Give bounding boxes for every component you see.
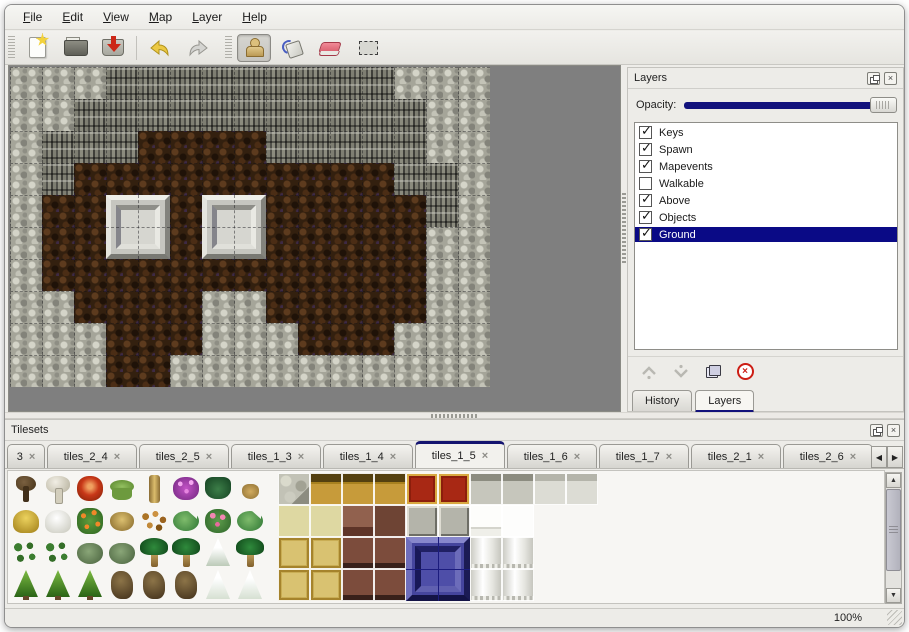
tileset-tile-lily[interactable]: [234, 505, 266, 537]
map-tile: [458, 291, 490, 323]
map-tile: [234, 67, 266, 99]
map-tile: [266, 67, 298, 99]
tileset-tile-blank[interactable]: [534, 505, 566, 537]
scroll-down-button[interactable]: ▼: [886, 588, 901, 603]
map-tile: [330, 163, 362, 195]
tileset-tile-carpet[interactable]: [278, 569, 310, 601]
map-tile: [138, 355, 170, 387]
chevron-down-icon: [671, 363, 691, 381]
map-tile: [330, 67, 362, 99]
map-tile: [330, 131, 362, 163]
layer-visibility-checkbox[interactable]: [639, 177, 652, 190]
map-tile: [426, 227, 458, 259]
tileset-tile-maroon[interactable]: [374, 569, 406, 601]
tileset-tile-stump[interactable]: [106, 473, 138, 505]
close-tab-icon[interactable]: ×: [206, 451, 212, 463]
tileset-tile-white-col[interactable]: [502, 537, 534, 569]
tileset-tile-blank[interactable]: [598, 505, 630, 537]
tileset-tile-white-col[interactable]: [470, 569, 502, 601]
tab-label: tiles_1_6: [524, 451, 568, 463]
map-tile: [42, 67, 74, 99]
tileset-tile-palm[interactable]: [170, 537, 202, 569]
tab-label: tiles_1_5: [432, 450, 476, 462]
tileset-tile-tree-bare[interactable]: [10, 473, 42, 505]
map-tile: [234, 99, 266, 131]
save-button[interactable]: [96, 34, 130, 62]
map-tile: [74, 195, 106, 227]
map-tile: [330, 195, 362, 227]
move-layer-up-button[interactable]: [638, 361, 660, 383]
map-tile: [42, 227, 74, 259]
tileset-tab-3[interactable]: 3×: [7, 444, 45, 468]
map-tile: [426, 195, 458, 227]
close-tab-icon[interactable]: ×: [574, 451, 580, 463]
tileset-tab-tiles_2_6[interactable]: tiles_2_6×: [783, 444, 873, 468]
menu-edit[interactable]: Edit: [52, 7, 93, 27]
map-tile: [106, 259, 138, 291]
map-platform-tile: [106, 195, 170, 259]
map-tile: [394, 227, 426, 259]
tileset-tile-blank[interactable]: [598, 537, 630, 569]
map-tile: [10, 259, 42, 291]
map-tile: [362, 99, 394, 131]
map-tile: [74, 99, 106, 131]
tileset-tile-blank[interactable]: [630, 569, 662, 601]
check-icon: ✓: [641, 192, 652, 205]
tileset-tile-red-ornate[interactable]: [438, 473, 470, 505]
scroll-tabs-left-button[interactable]: ◀: [871, 446, 887, 468]
tileset-tile-tree-white[interactable]: [42, 473, 74, 505]
tileset-tab-tiles_1_4[interactable]: tiles_1_4×: [323, 444, 413, 468]
tileset-tile-bush-dry[interactable]: [106, 505, 138, 537]
map-tile: [42, 131, 74, 163]
map-tile: [170, 163, 202, 195]
menu-layer[interactable]: Layer: [182, 7, 232, 27]
check-icon: ✓: [641, 226, 652, 239]
map-tile: [10, 291, 42, 323]
map-tile: [202, 291, 234, 323]
map-tile: [138, 291, 170, 323]
tileset-tabbar: 3×tiles_2_4×tiles_2_5×tiles_1_3×tiles_1_…: [5, 442, 905, 469]
tileset-tile-gold[interactable]: [310, 473, 342, 505]
tileset-tile-tree-twisted[interactable]: [170, 569, 202, 601]
tileset-tile-tree-snow[interactable]: [202, 569, 234, 601]
map-tile: [362, 355, 394, 387]
map-tile: [202, 163, 234, 195]
layers-panel: Layers × Opacity: ✓Keys✓Spawn✓MapeventsW…: [627, 67, 904, 412]
tileset-tile-gray-top[interactable]: [502, 473, 534, 505]
tileset-tile-palm[interactable]: [138, 537, 170, 569]
map-tile: [42, 99, 74, 131]
tileset-tab-tiles_2_4[interactable]: tiles_2_4×: [47, 444, 137, 468]
layer-row-keys[interactable]: ✓Keys: [635, 125, 897, 140]
map-tile: [266, 227, 298, 259]
map-tile: [394, 163, 426, 195]
tileset-tile-lily[interactable]: [170, 505, 202, 537]
tab-label: tiles_2_5: [156, 451, 200, 463]
map-tile: [458, 67, 490, 99]
tileset-tile-yellow[interactable]: [310, 505, 342, 537]
toolbar-grip[interactable]: [8, 36, 15, 60]
map-tile: [298, 131, 330, 163]
map-tile: [234, 163, 266, 195]
tileset-tab-tiles_1_6[interactable]: tiles_1_6×: [507, 444, 597, 468]
panel-tabs: HistoryLayers: [632, 390, 757, 413]
layer-visibility-checkbox[interactable]: ✓: [639, 126, 652, 139]
copy-icon: [706, 365, 721, 378]
menu-view[interactable]: View: [93, 7, 139, 27]
tileset-tab-tiles_1_3[interactable]: tiles_1_3×: [231, 444, 321, 468]
tab-history[interactable]: History: [632, 390, 692, 411]
delete-layer-button[interactable]: ×: [734, 361, 756, 383]
tileset-tile-white-col[interactable]: [502, 569, 534, 601]
tileset-tile-flower-red[interactable]: [74, 473, 106, 505]
select-tool-button[interactable]: [351, 34, 385, 62]
horizontal-splitter[interactable]: [5, 412, 904, 419]
tileset-tab-tiles_2_1[interactable]: tiles_2_1×: [691, 444, 781, 468]
eraser-tool-button[interactable]: [313, 34, 347, 62]
tileset-tile-gold[interactable]: [342, 473, 374, 505]
map-tile: [426, 291, 458, 323]
map-tile: [170, 99, 202, 131]
zoom-level-label: 100%: [834, 612, 862, 624]
layers-panel-title: Layers: [634, 72, 863, 84]
layer-visibility-checkbox[interactable]: ✓: [639, 143, 652, 156]
close-tab-icon[interactable]: ×: [666, 451, 672, 463]
map-tile: [298, 99, 330, 131]
map-tile: [106, 355, 138, 387]
map-tile: [394, 259, 426, 291]
tileset-tile-red-ornate[interactable]: [406, 473, 438, 505]
splitter-grip: [431, 414, 477, 418]
map-tile: [74, 67, 106, 99]
tileset-tile-tree-twisted[interactable]: [138, 569, 170, 601]
tileset-tile-sprouts[interactable]: [42, 537, 74, 569]
map-tile: [362, 67, 394, 99]
map-tile: [202, 259, 234, 291]
map-tile: [298, 259, 330, 291]
menu-map[interactable]: Map: [139, 7, 182, 27]
map-tile: [298, 67, 330, 99]
tileset-tile-maroon-lt[interactable]: [342, 505, 374, 537]
map-tile: [426, 259, 458, 291]
map-tile: [394, 355, 426, 387]
tileset-tile-blank[interactable]: [566, 537, 598, 569]
stamp-tool-button[interactable]: [237, 34, 271, 62]
map-tile: [394, 291, 426, 323]
tileset-tile-blank[interactable]: [630, 537, 662, 569]
map-tile: [458, 355, 490, 387]
tab-label: tiles_1_3: [248, 451, 292, 463]
map-tile: [42, 259, 74, 291]
map-tile: [426, 163, 458, 195]
redo-button[interactable]: [181, 34, 215, 62]
tilesets-panel-title: Tilesets: [11, 424, 866, 436]
delete-icon: ×: [737, 363, 754, 380]
map-tile: [10, 99, 42, 131]
layer-row-walkable[interactable]: Walkable: [635, 176, 897, 191]
map-tile: [458, 131, 490, 163]
map-tile: [138, 163, 170, 195]
map-tile: [74, 227, 106, 259]
tileset-tile-maroon-dk[interactable]: [374, 505, 406, 537]
tileset-tile-tree-green[interactable]: [42, 569, 74, 601]
tileset-tile-plant-dry[interactable]: [234, 473, 266, 505]
tileset-scrollbar[interactable]: ▲ ▼: [885, 472, 902, 604]
scroll-tabs-right-button[interactable]: ▶: [887, 446, 903, 468]
layer-visibility-checkbox[interactable]: ✓: [639, 228, 652, 241]
map-tile: [394, 99, 426, 131]
map-viewport[interactable]: [8, 65, 621, 412]
move-layer-down-button[interactable]: [670, 361, 692, 383]
tileset-tile-carpet[interactable]: [310, 537, 342, 569]
map-tile: [298, 355, 330, 387]
map-tile: [138, 259, 170, 291]
close-tab-icon[interactable]: ×: [390, 451, 396, 463]
tileset-tile-flower-purple[interactable]: [170, 473, 202, 505]
layer-row-ground[interactable]: ✓Ground: [635, 227, 897, 242]
tileset-tile-leaves[interactable]: [138, 505, 170, 537]
tileset-tile-carpet[interactable]: [278, 537, 310, 569]
layer-row-objects[interactable]: ✓Objects: [635, 210, 897, 225]
layer-visibility-checkbox[interactable]: ✓: [639, 160, 652, 173]
opacity-slider[interactable]: [684, 102, 895, 109]
new-file-icon: [29, 37, 46, 58]
splitter-grip: [622, 193, 626, 263]
tileset-tile-gray-3d[interactable]: [438, 505, 470, 537]
map-tile: [10, 355, 42, 387]
tileset-tile-blank[interactable]: [630, 473, 662, 505]
map-tile: [138, 67, 170, 99]
map-tile: [266, 323, 298, 355]
tab-label: tiles_2_6: [800, 451, 844, 463]
tileset-tile-blank[interactable]: [630, 505, 662, 537]
tab-label: tiles_1_7: [616, 451, 660, 463]
tileset-tile-flowers-orange[interactable]: [74, 505, 106, 537]
tileset-tab-tiles_1_7[interactable]: tiles_1_7×: [599, 444, 689, 468]
map-tile: [298, 291, 330, 323]
map-tile: [10, 67, 42, 99]
tileset-tile-snow-mound[interactable]: [42, 505, 74, 537]
map-tile: [266, 163, 298, 195]
map-tile: [170, 291, 202, 323]
map-tile: [10, 195, 42, 227]
map-tile: [42, 323, 74, 355]
map-tile: [202, 355, 234, 387]
map-tile: [362, 323, 394, 355]
map-tile: [74, 131, 106, 163]
tileset-tile-carpet[interactable]: [310, 569, 342, 601]
map-tile: [202, 67, 234, 99]
map-tile: [362, 227, 394, 259]
tileset-tile-gray-top[interactable]: [470, 473, 502, 505]
map-tile: [394, 323, 426, 355]
map-tile: [106, 131, 138, 163]
tileset-tile-maroon[interactable]: [342, 537, 374, 569]
selected-blue-tile[interactable]: [406, 537, 470, 601]
map-canvas: [10, 67, 490, 387]
map-tile: [330, 99, 362, 131]
map-tile: [202, 99, 234, 131]
resize-grip[interactable]: [887, 610, 902, 625]
map-tile: [10, 163, 42, 195]
map-tile: [234, 291, 266, 323]
tilesets-panel-titlebar: Tilesets ×: [5, 420, 905, 441]
tileset-tile-blank[interactable]: [566, 505, 598, 537]
scrollbar-thumb[interactable]: [886, 489, 901, 571]
tileset-tile-gray-3d[interactable]: [406, 505, 438, 537]
tileset-tile-gray-light[interactable]: [566, 473, 598, 505]
opacity-label: Opacity:: [636, 99, 676, 111]
tileset-content[interactable]: [7, 470, 885, 604]
tileset-tile-blank[interactable]: [534, 537, 566, 569]
map-tile: [426, 67, 458, 99]
tileset-tile-tree-snow[interactable]: [234, 569, 266, 601]
map-tile: [138, 131, 170, 163]
layer-name: Mapevents: [659, 161, 713, 173]
layer-row-spawn[interactable]: ✓Spawn: [635, 142, 897, 157]
tileset-tile-gray-light[interactable]: [534, 473, 566, 505]
new-file-button[interactable]: [20, 34, 54, 62]
map-tile: [362, 195, 394, 227]
tileset-tile-yellow[interactable]: [278, 505, 310, 537]
layer-visibility-checkbox[interactable]: ✓: [639, 211, 652, 224]
tileset-tile-maroon[interactable]: [374, 537, 406, 569]
map-tile: [458, 163, 490, 195]
toolbar-separator: [136, 36, 137, 60]
tileset-tile-stone[interactable]: [278, 473, 310, 505]
map-tile: [106, 99, 138, 131]
tileset-tile-white[interactable]: [502, 505, 534, 537]
tileset-tile-blank[interactable]: [566, 569, 598, 601]
float-panel-button[interactable]: [870, 424, 883, 437]
map-tile: [394, 67, 426, 99]
tileset-tile-hay[interactable]: [10, 505, 42, 537]
app-window: FileEditViewMapLayerHelp Layers ×: [4, 4, 905, 628]
close-tab-icon[interactable]: ×: [482, 450, 488, 462]
map-tile: [298, 163, 330, 195]
menu-file[interactable]: File: [13, 7, 52, 27]
tileset-tile-fern[interactable]: [202, 473, 234, 505]
map-tile: [170, 259, 202, 291]
tileset-tile-blank[interactable]: [598, 569, 630, 601]
map-tile: [74, 355, 106, 387]
tab-label: tiles_2_1: [708, 451, 752, 463]
layer-row-above[interactable]: ✓Above: [635, 193, 897, 208]
check-icon: ✓: [641, 209, 652, 222]
map-tile: [330, 291, 362, 323]
tab-layers[interactable]: Layers: [695, 390, 754, 413]
duplicate-layer-button[interactable]: [702, 361, 724, 383]
tileset-tile-tree-green[interactable]: [10, 569, 42, 601]
opacity-slider-handle[interactable]: [870, 97, 897, 113]
tileset-tile-sprouts[interactable]: [10, 537, 42, 569]
tileset-tile-tree-green[interactable]: [74, 569, 106, 601]
open-folder-icon: [64, 40, 86, 56]
tileset-tile-blank[interactable]: [598, 473, 630, 505]
close-tab-icon[interactable]: ×: [29, 451, 35, 463]
map-tile: [170, 131, 202, 163]
map-tile: [10, 131, 42, 163]
map-tile: [426, 355, 458, 387]
tileset-tile-maroon[interactable]: [342, 569, 374, 601]
map-tile: [330, 355, 362, 387]
map-tile: [74, 291, 106, 323]
paint-bucket-icon: [282, 38, 302, 58]
tileset-tile-pine-snow[interactable]: [202, 537, 234, 569]
close-panel-button[interactable]: ×: [884, 72, 897, 85]
tileset-tab-tiles_2_5[interactable]: tiles_2_5×: [139, 444, 229, 468]
layer-name: Objects: [659, 212, 696, 224]
tileset-tile-blank[interactable]: [534, 569, 566, 601]
map-tile: [234, 131, 266, 163]
layer-name: Keys: [659, 127, 683, 139]
map-tile: [106, 291, 138, 323]
map-tile: [234, 323, 266, 355]
close-panel-button[interactable]: ×: [887, 424, 900, 437]
layer-visibility-checkbox[interactable]: ✓: [639, 194, 652, 207]
tileset-tile-gold[interactable]: [374, 473, 406, 505]
close-tab-icon[interactable]: ×: [114, 451, 120, 463]
map-tile: [394, 195, 426, 227]
save-icon: [102, 39, 124, 56]
tileset-tile-trunk[interactable]: [138, 473, 170, 505]
map-tile: [266, 259, 298, 291]
map-tile: [266, 355, 298, 387]
map-tile: [234, 259, 266, 291]
map-tile: [330, 259, 362, 291]
float-panel-button[interactable]: [867, 72, 880, 85]
scroll-up-button[interactable]: ▲: [886, 473, 901, 488]
map-tile: [330, 227, 362, 259]
tileset-tile-white-frill[interactable]: [470, 505, 502, 537]
tileset-tile-palm[interactable]: [234, 537, 266, 569]
check-icon: ✓: [641, 124, 652, 137]
stamp-icon: [244, 38, 264, 58]
undo-button[interactable]: [143, 34, 177, 62]
close-tab-icon[interactable]: ×: [850, 451, 856, 463]
map-tile: [362, 259, 394, 291]
map-tile: [426, 131, 458, 163]
map-tile: [42, 163, 74, 195]
menu-help[interactable]: Help: [232, 7, 277, 27]
map-platform-tile: [202, 195, 266, 259]
map-tile: [266, 99, 298, 131]
map-tile: [10, 227, 42, 259]
layer-buttons: ×: [628, 356, 903, 386]
tileset-tile-white-col[interactable]: [470, 537, 502, 569]
map-tile: [458, 195, 490, 227]
fill-tool-button[interactable]: [275, 34, 309, 62]
tileset-tile-bush[interactable]: [74, 537, 106, 569]
tileset-tile-bush[interactable]: [106, 537, 138, 569]
tileset-tab-tiles_1_5[interactable]: tiles_1_5×: [415, 441, 505, 468]
tileset-tile-flower-pink[interactable]: [202, 505, 234, 537]
tilesets-panel: Tilesets × 3×tiles_2_4×tiles_2_5×tiles_1…: [5, 419, 905, 610]
map-tile: [170, 227, 202, 259]
tileset-tile-tree-twisted[interactable]: [106, 569, 138, 601]
toolbar-grip[interactable]: [225, 36, 232, 60]
map-tile: [138, 99, 170, 131]
close-tab-icon[interactable]: ×: [758, 451, 764, 463]
open-button[interactable]: [58, 34, 92, 62]
tab-label: 3: [17, 451, 23, 463]
layer-list: ✓Keys✓Spawn✓MapeventsWalkable✓Above✓Obje…: [634, 122, 898, 350]
layer-row-mapevents[interactable]: ✓Mapevents: [635, 159, 897, 174]
redo-icon: [186, 37, 210, 59]
menu-bar: FileEditViewMapLayerHelp: [5, 5, 904, 30]
close-tab-icon[interactable]: ×: [298, 451, 304, 463]
